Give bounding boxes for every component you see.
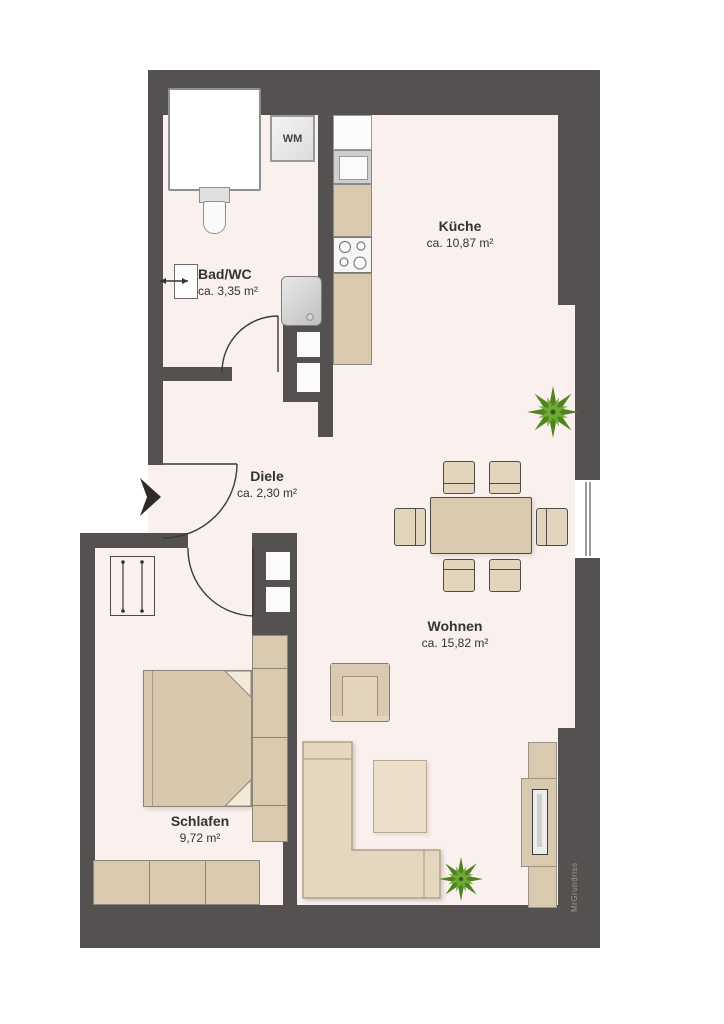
floor-living-lower bbox=[297, 728, 558, 905]
wardrobe-bottom bbox=[93, 860, 260, 905]
kitchen-sink bbox=[333, 150, 372, 184]
dining-chair bbox=[443, 461, 475, 494]
dining-table bbox=[430, 497, 532, 554]
fridge bbox=[333, 115, 372, 150]
room-area: ca. 2,30 m² bbox=[217, 486, 317, 501]
watermark: MrGrundriss bbox=[570, 852, 579, 912]
dining-chair bbox=[489, 461, 521, 494]
vent-symbol bbox=[174, 264, 198, 299]
room-name: Wohnen bbox=[395, 618, 515, 636]
wall-entrance-step bbox=[80, 533, 188, 548]
shaft-niche bbox=[297, 363, 320, 392]
shaft-niche bbox=[297, 332, 320, 357]
kitchen-counter bbox=[333, 273, 372, 365]
bathtub bbox=[168, 88, 261, 191]
wall-bedroom-shaft bbox=[252, 533, 297, 637]
room-name: Küche bbox=[400, 218, 520, 236]
tv-unit bbox=[521, 778, 557, 867]
toilet bbox=[203, 201, 226, 234]
cooktop bbox=[333, 237, 372, 273]
wall-bath-bottom bbox=[163, 367, 232, 381]
room-name: Diele bbox=[217, 468, 317, 486]
armchair-armrest bbox=[377, 676, 389, 716]
wall-bottom bbox=[80, 905, 600, 948]
armchair-armrest bbox=[331, 676, 343, 716]
room-area: ca. 10,87 m² bbox=[400, 236, 520, 251]
dining-chair bbox=[443, 559, 475, 592]
room-label-kueche: Küche ca. 10,87 m² bbox=[400, 218, 520, 251]
sink-basin bbox=[339, 156, 368, 180]
window-glass-line bbox=[585, 482, 587, 556]
room-area: ca. 15,82 m² bbox=[395, 636, 515, 651]
wardrobe-right bbox=[252, 635, 288, 842]
room-label-wohnen: Wohnen ca. 15,82 m² bbox=[395, 618, 515, 651]
room-name: Schlafen bbox=[140, 813, 260, 831]
dining-chair bbox=[536, 508, 568, 546]
closet-symbol bbox=[110, 556, 155, 616]
dining-chair bbox=[489, 559, 521, 592]
room-label-bad: Bad/WC ca. 3,35 m² bbox=[198, 266, 288, 299]
washing-machine-label: WM bbox=[283, 133, 303, 145]
floor-plan: WM bbox=[0, 0, 724, 1024]
wall-right-mid2 bbox=[575, 558, 600, 728]
shaft-niche bbox=[266, 552, 290, 580]
room-area: ca. 3,35 m² bbox=[198, 284, 288, 299]
dining-chair bbox=[394, 508, 426, 546]
room-label-schlafen: Schlafen 9,72 m² bbox=[140, 813, 260, 846]
floor-entrance-gap bbox=[148, 465, 163, 533]
kitchen-counter bbox=[333, 184, 372, 237]
bed-foot-line bbox=[152, 671, 153, 806]
coffee-table bbox=[373, 760, 427, 833]
room-label-diele: Diele ca. 2,30 m² bbox=[217, 468, 317, 501]
shaft-niche bbox=[266, 587, 290, 612]
tv-screen-stripe bbox=[537, 794, 542, 847]
window bbox=[575, 480, 600, 558]
washing-machine: WM bbox=[270, 115, 315, 162]
wall-right-bottom bbox=[558, 728, 600, 948]
window-glass-line bbox=[589, 482, 591, 556]
wall-right-mid bbox=[575, 305, 600, 480]
wall-left-upper bbox=[148, 70, 163, 465]
bed bbox=[143, 670, 252, 807]
tv-screen bbox=[532, 789, 548, 855]
armchair bbox=[330, 663, 390, 722]
wall-right-kitchen bbox=[558, 70, 600, 305]
room-area: 9,72 m² bbox=[140, 831, 260, 846]
room-name: Bad/WC bbox=[198, 266, 288, 284]
